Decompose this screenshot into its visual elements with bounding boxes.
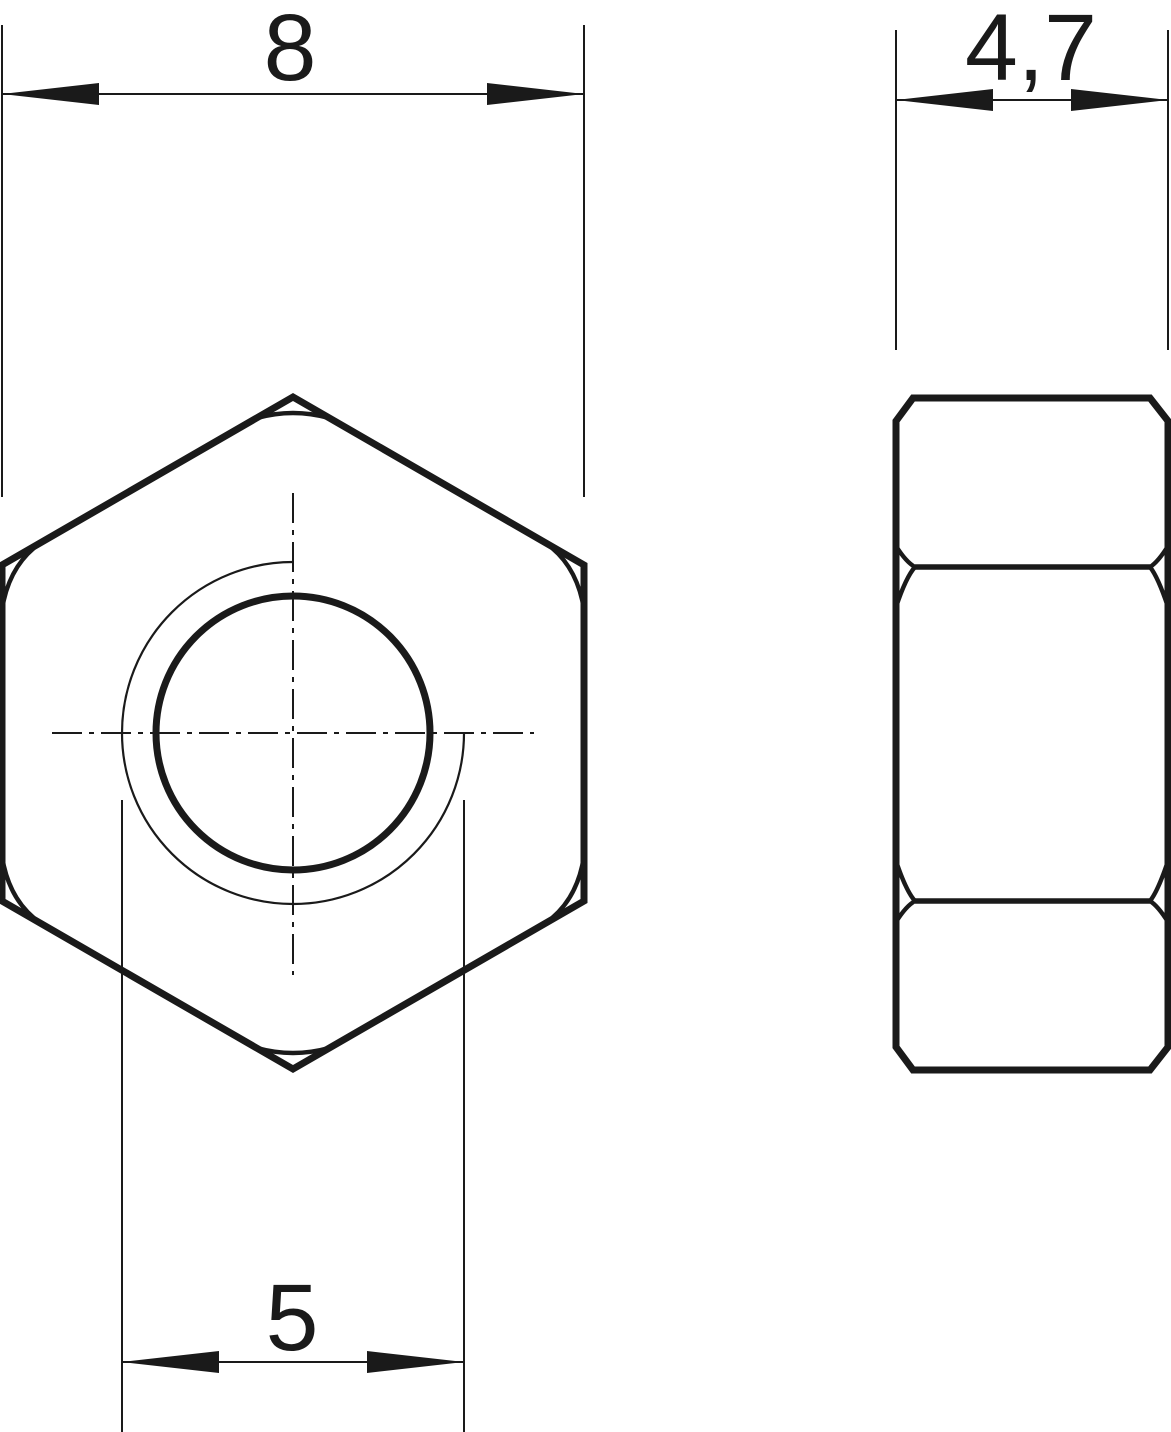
drawing-sheet: 8 4,7 5: [0, 0, 1171, 1432]
dimension-label-thread-diameter: 5: [266, 1265, 319, 1371]
front-view: [2, 397, 584, 1069]
dimension-label-across-flats: 8: [264, 0, 317, 101]
arrowhead-left: [122, 1351, 219, 1373]
arrowhead-left: [2, 83, 99, 105]
side-view: [896, 398, 1168, 1070]
dimension-thickness: 4,7: [896, 0, 1168, 350]
dimension-across-flats: 8: [2, 0, 584, 497]
arrowhead-right: [367, 1351, 464, 1373]
drawing-canvas: 8 4,7 5: [0, 0, 1171, 1432]
arrowhead-right: [487, 83, 584, 105]
chamfer-arc-bottom: [257, 1048, 329, 1053]
dimension-label-thickness: 4,7: [965, 0, 1097, 101]
chamfer-arc-top: [257, 413, 329, 418]
side-outline: [896, 398, 1168, 1070]
